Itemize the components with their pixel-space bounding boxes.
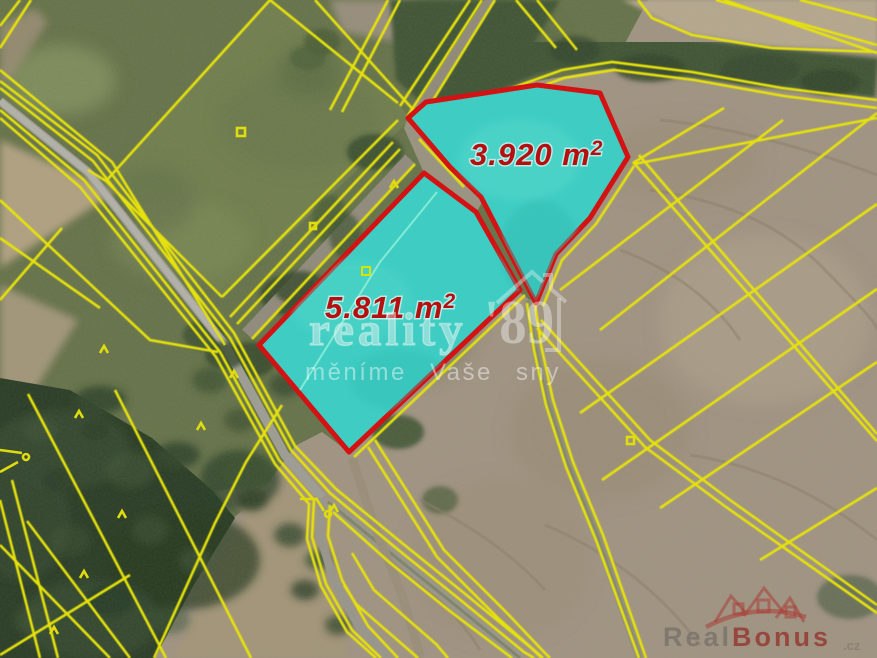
svg-text:měníme Vaše sny: měníme Vaše sny xyxy=(305,359,561,386)
svg-text:RealBonus: RealBonus xyxy=(663,622,831,652)
svg-text:.cz: .cz xyxy=(843,638,861,653)
svg-text:'89: '89 xyxy=(484,289,554,357)
svg-text:3.920 m2: 3.920 m2 xyxy=(470,137,603,172)
svg-text:reality: reality xyxy=(309,304,467,356)
